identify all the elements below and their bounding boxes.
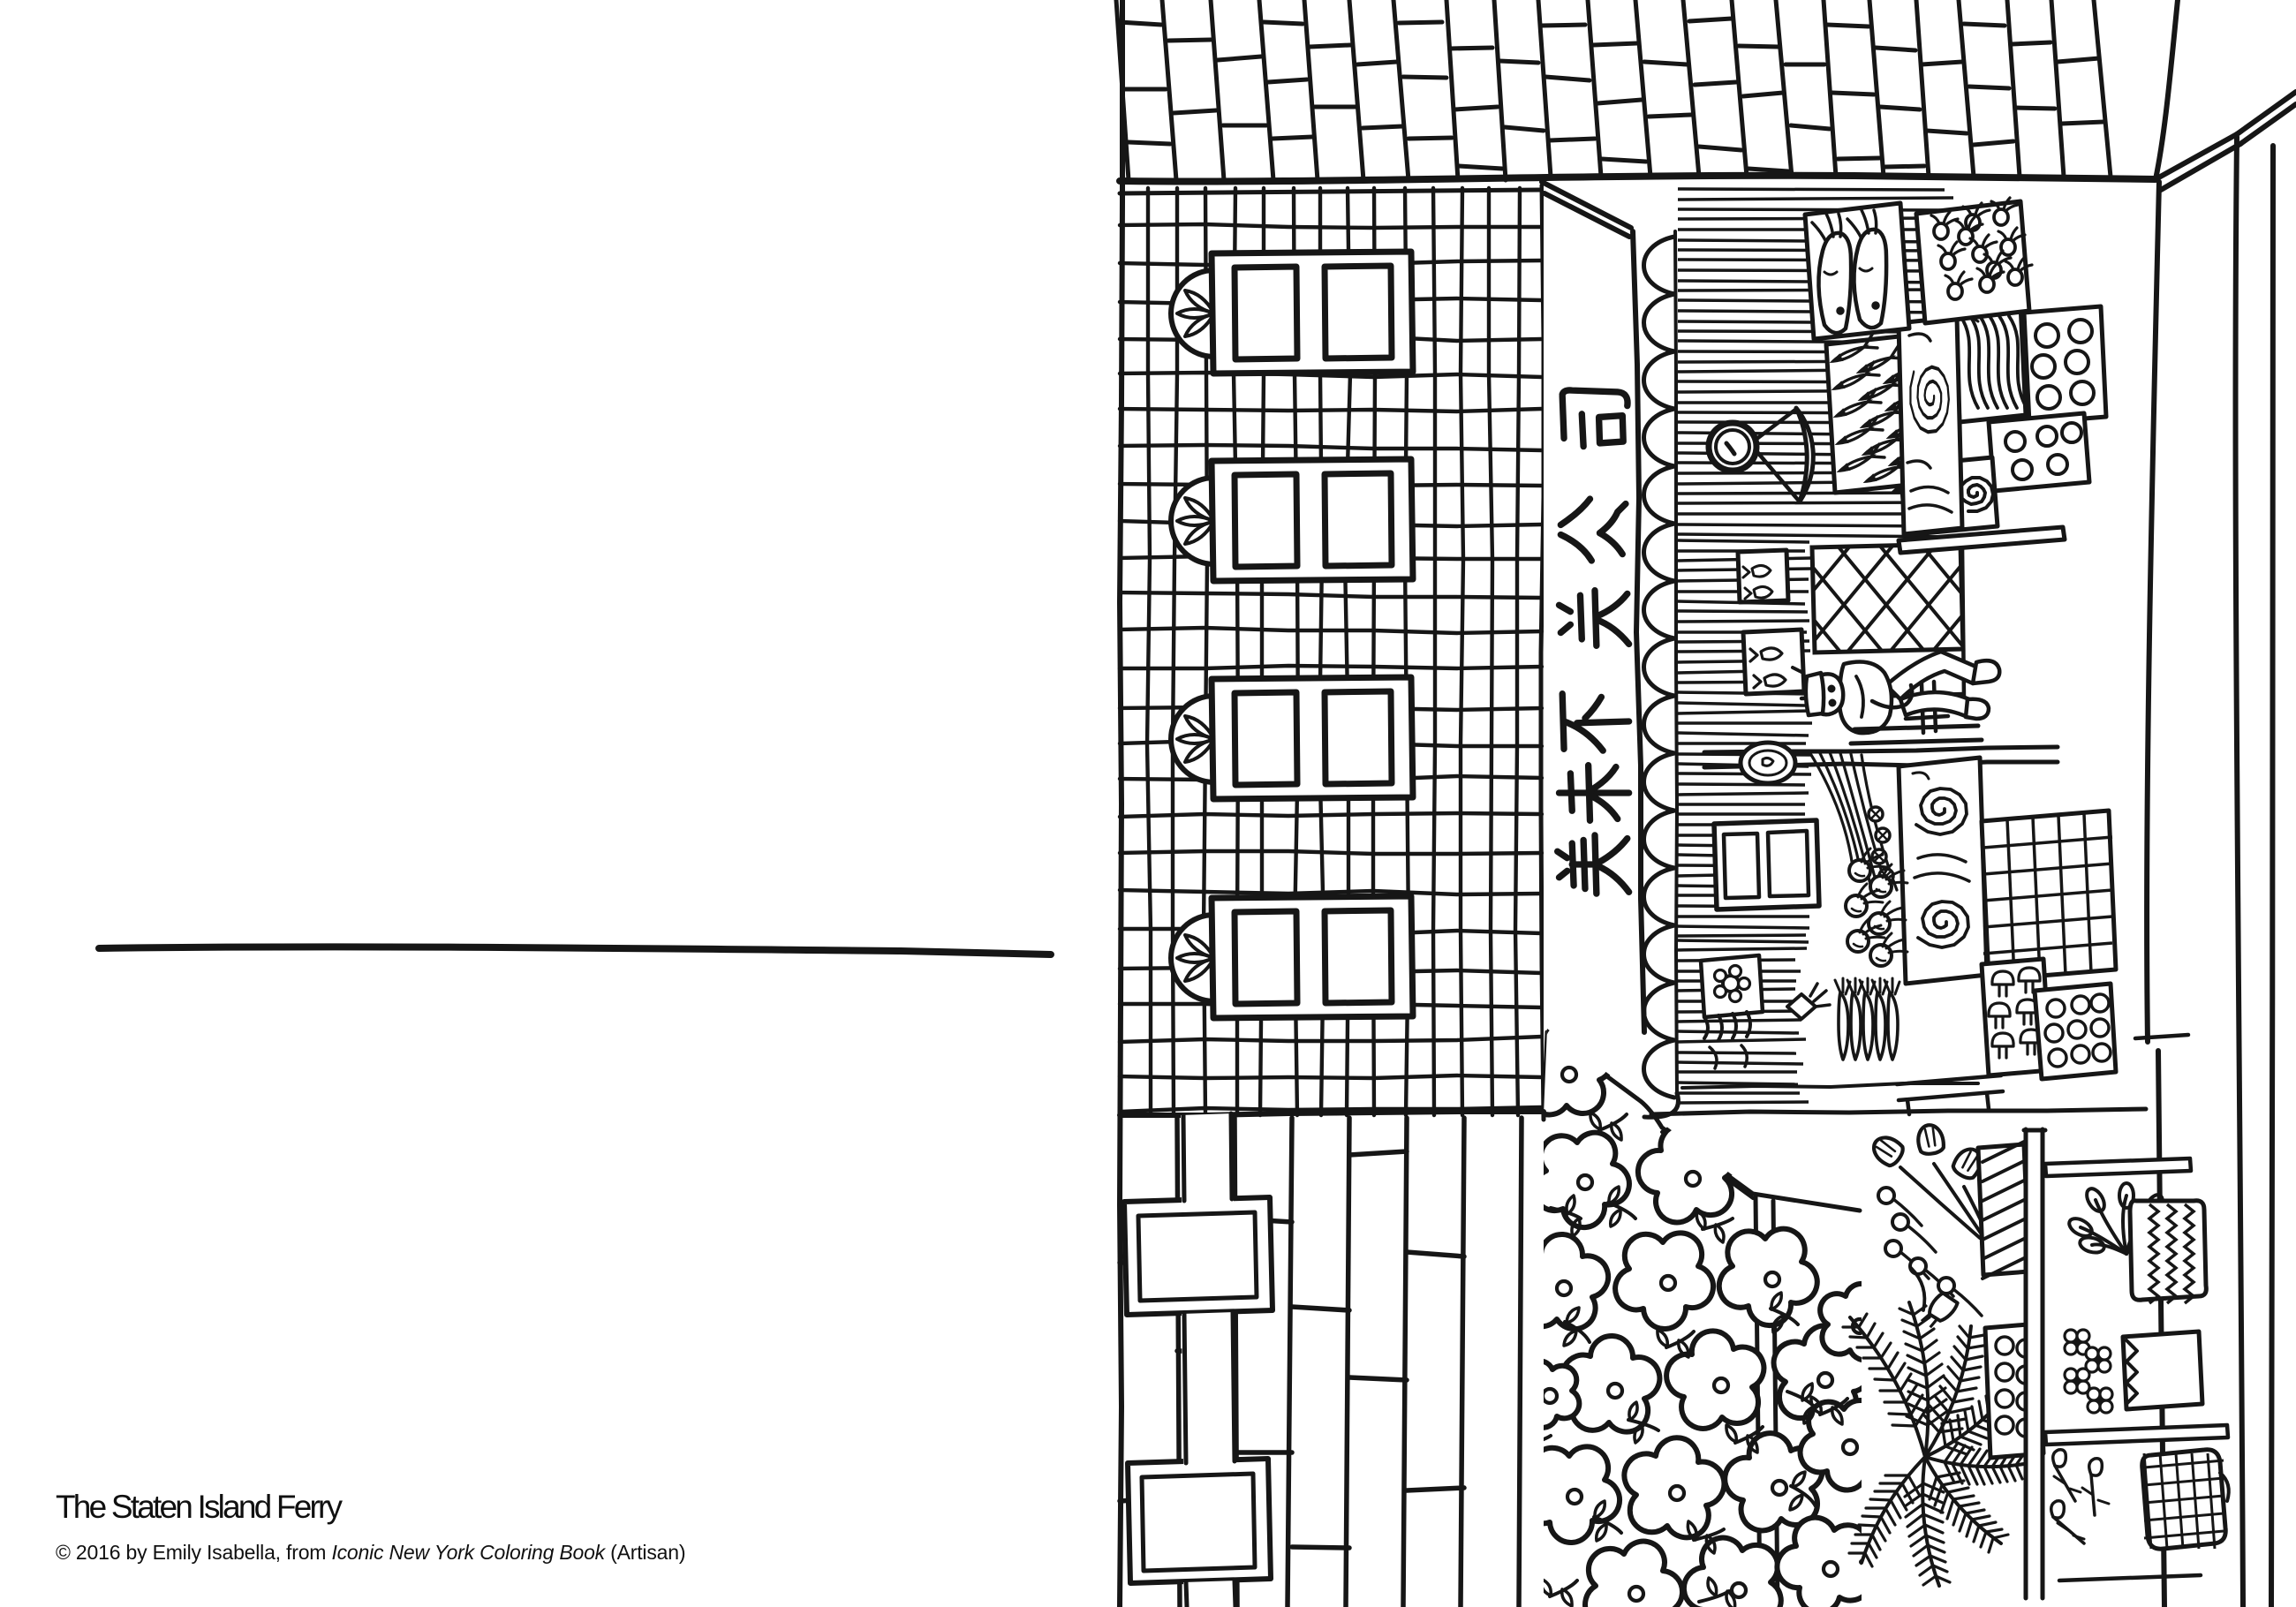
svg-text:© 2016 by Emily Isabella, from: © 2016 by Emily Isabella, from Iconic Ne… xyxy=(56,1541,685,1564)
svg-text:The Staten Island Ferry: The Staten Island Ferry xyxy=(56,1489,344,1525)
